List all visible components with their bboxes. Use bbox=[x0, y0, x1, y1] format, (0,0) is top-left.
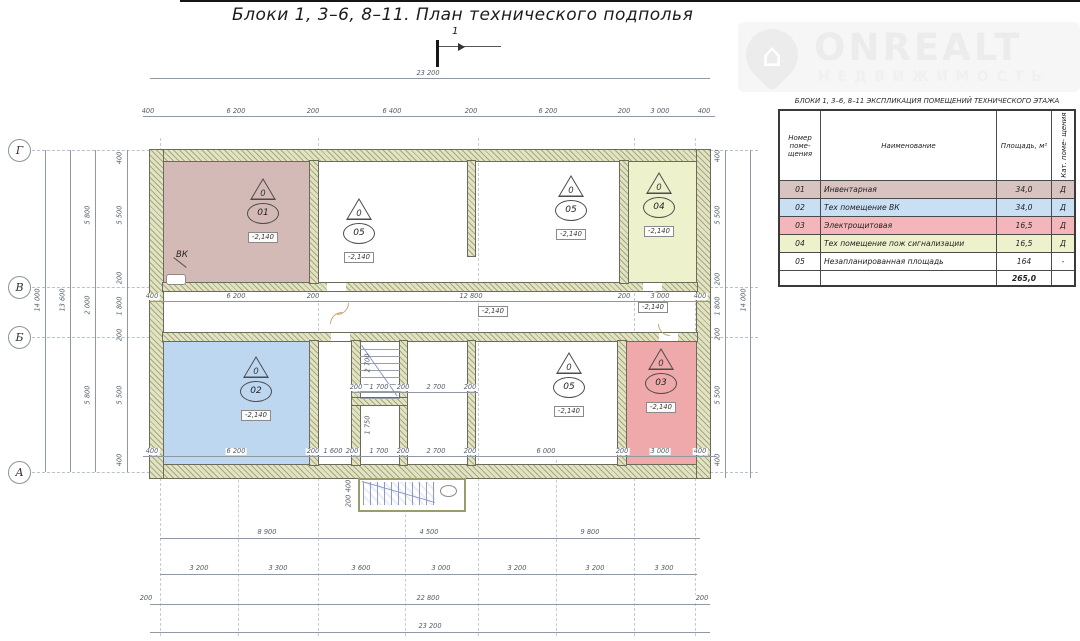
drawing-title: Блоки 1, 3–6, 8–11. План технического по… bbox=[232, 5, 693, 25]
elevation-label: -2,140 bbox=[241, 410, 271, 421]
dim-label: 2 700 bbox=[365, 353, 372, 374]
wall bbox=[310, 161, 318, 283]
dim-label: 14 000 bbox=[35, 287, 42, 312]
elevation-label: -2,140 bbox=[554, 406, 584, 417]
stair-fixture bbox=[440, 485, 457, 497]
legend-table-body: 01Инвентарная34,0Д02Тех помещение ВК34,0… bbox=[779, 181, 1075, 287]
dim-label: 400 bbox=[117, 151, 124, 166]
legend-cell-area: 34,0 bbox=[997, 199, 1052, 217]
legend-cell-area: 16,5 bbox=[997, 235, 1052, 253]
dim-label: 3 000 bbox=[650, 108, 671, 115]
dim-line bbox=[150, 301, 710, 302]
col-category: Кат. поме- щения bbox=[1052, 110, 1076, 181]
legend-header-row: Номер поме- щения Наименование Площадь, … bbox=[779, 110, 1075, 181]
axis-bubble: В bbox=[8, 276, 31, 299]
dim-label: 200 bbox=[349, 384, 364, 391]
section-mark-number: 1 bbox=[452, 26, 458, 37]
wall-stair-landing bbox=[352, 398, 407, 405]
dim-label: 400 bbox=[715, 453, 722, 468]
dim-label: 1 800 bbox=[117, 296, 124, 317]
axis-line bbox=[478, 138, 479, 636]
dim-label: 2 000 bbox=[85, 295, 92, 316]
dim-label: 200 bbox=[617, 108, 632, 115]
dim-label: 400 bbox=[117, 453, 124, 468]
dim-label: 5 500 bbox=[715, 385, 722, 406]
dim-label: 400 bbox=[697, 108, 712, 115]
legend-row: 03Электрощитовая16,5Д bbox=[779, 217, 1075, 235]
legend-cell-area: 164 bbox=[997, 253, 1052, 271]
room-marker-01: 001-2,140 bbox=[240, 178, 286, 243]
dim-label: 200 bbox=[396, 384, 411, 391]
col-area: Площадь, м² bbox=[997, 110, 1052, 181]
zone-triangle-icon: 0 bbox=[646, 172, 672, 194]
dim-line bbox=[160, 538, 700, 539]
dim-line bbox=[150, 604, 710, 605]
dim-label: 6 200 bbox=[226, 448, 247, 455]
room-marker-03: 003-2,140 bbox=[638, 348, 684, 413]
dim-line bbox=[750, 150, 751, 478]
wall bbox=[163, 283, 697, 291]
dim-label: 9 800 bbox=[580, 529, 601, 536]
legend-row: 05Незапланированная площадь164- bbox=[779, 253, 1075, 271]
legend-cell-area: 16,5 bbox=[997, 217, 1052, 235]
elevation-label: -2,140 bbox=[478, 306, 508, 317]
dim-label: 3 300 bbox=[654, 565, 675, 572]
wall bbox=[163, 333, 697, 341]
dim-label: 400 bbox=[346, 479, 353, 494]
house-icon: ⌂ bbox=[746, 29, 798, 81]
axis-line bbox=[556, 460, 557, 636]
dim-label: 5 800 bbox=[85, 385, 92, 406]
dim-label: 200 bbox=[306, 108, 321, 115]
legend-cell-num: 05 bbox=[779, 253, 821, 271]
dim-label: 200 bbox=[463, 384, 478, 391]
zone-triangle-icon: 0 bbox=[648, 348, 674, 370]
room-number-oval: 02 bbox=[240, 381, 272, 402]
dim-label: 2 700 bbox=[426, 384, 447, 391]
dim-label: 200 bbox=[695, 595, 710, 602]
dim-label: 200 bbox=[617, 293, 632, 300]
dim-label: 200 bbox=[463, 448, 478, 455]
dim-label: 3 000 bbox=[650, 448, 671, 455]
elevation-label: -2,140 bbox=[646, 402, 676, 413]
dim-label: 5 500 bbox=[117, 385, 124, 406]
legend-cell-name: Инвентарная bbox=[821, 181, 997, 199]
axis-line bbox=[318, 138, 319, 636]
zone-triangle-icon: 0 bbox=[243, 356, 269, 378]
zone-triangle-icon: 0 bbox=[556, 352, 582, 374]
room-marker-05: 005-2,140 bbox=[548, 175, 594, 240]
vk-fixture bbox=[166, 274, 186, 285]
dim-line bbox=[95, 150, 96, 472]
legend-cell-num: 04 bbox=[779, 235, 821, 253]
legend-empty-cell bbox=[821, 271, 997, 287]
axis-bubble: Б bbox=[8, 326, 31, 349]
legend-cell-name: Тех помещение ВК bbox=[821, 199, 997, 217]
section-mark-bar bbox=[436, 40, 439, 67]
dim-label: 13 600 bbox=[60, 287, 67, 312]
dim-label: 400 bbox=[693, 293, 708, 300]
dim-label: 400 bbox=[693, 448, 708, 455]
legend-cell-num: 02 bbox=[779, 199, 821, 217]
dim-label: 3 600 bbox=[351, 565, 372, 572]
dim-label: 200 bbox=[117, 271, 124, 286]
dim-label: 1 750 bbox=[365, 415, 372, 436]
dim-label: 400 bbox=[715, 149, 722, 164]
dim-line bbox=[725, 150, 726, 478]
elevation-label: -2,140 bbox=[556, 229, 586, 240]
dim-label: 200 bbox=[306, 448, 321, 455]
room-number-oval: 01 bbox=[247, 203, 279, 224]
col-room-number: Номер поме- щения bbox=[779, 110, 821, 181]
wall bbox=[150, 150, 710, 161]
dim-label: 3 000 bbox=[650, 293, 671, 300]
dim-label: 200 bbox=[715, 327, 722, 342]
dim-label: 5 500 bbox=[715, 205, 722, 226]
col-room-name: Наименование bbox=[821, 110, 997, 181]
blueprint-page: Блоки 1, 3–6, 8–11. План технического по… bbox=[0, 0, 1080, 641]
room-number-oval: 05 bbox=[555, 200, 587, 221]
legend-cell-cat: Д bbox=[1052, 235, 1076, 253]
legend-cell-num: 03 bbox=[779, 217, 821, 235]
dim-line bbox=[150, 78, 710, 79]
legend-cell-name: Незапланированная площадь bbox=[821, 253, 997, 271]
legend-row: 01Инвентарная34,0Д bbox=[779, 181, 1075, 199]
room-marker-04: 004-2,140 bbox=[636, 172, 682, 237]
room-explication-table: Номер поме- щения Наименование Площадь, … bbox=[778, 109, 1076, 287]
axis-bubble: А bbox=[8, 461, 31, 484]
dim-label: 6 000 bbox=[536, 448, 557, 455]
dim-line bbox=[127, 150, 128, 472]
axis-line bbox=[238, 460, 239, 636]
elevation-label: -2,140 bbox=[344, 252, 374, 263]
legend-empty-cell bbox=[1052, 271, 1076, 287]
dim-label: 6 200 bbox=[226, 293, 247, 300]
dim-label: 200 bbox=[615, 448, 630, 455]
dim-label: 200 bbox=[396, 448, 411, 455]
dim-label: 1 600 bbox=[323, 448, 344, 455]
legend-row: 04Тех помещение пож сигнализации16,5Д bbox=[779, 235, 1075, 253]
dim-label: 200 bbox=[346, 494, 353, 509]
legend-cell-cat: Д bbox=[1052, 199, 1076, 217]
legend-row: 02Тех помещение ВК34,0Д bbox=[779, 199, 1075, 217]
legend-title: БЛОКИ 1, 3–6, 8–11 ЭКСПЛИКАЦИЯ ПОМЕЩЕНИЙ… bbox=[776, 97, 1078, 105]
dim-label: 8 900 bbox=[257, 529, 278, 536]
dim-label: 200 bbox=[306, 293, 321, 300]
legend-total-row: 265,0 bbox=[779, 271, 1075, 287]
dim-line bbox=[352, 392, 478, 393]
elevation-label: -2,140 bbox=[248, 232, 278, 243]
dim-label: 14 000 bbox=[741, 287, 748, 312]
dim-label: 6 400 bbox=[382, 108, 403, 115]
zone-triangle-icon: 0 bbox=[558, 175, 584, 197]
dim-label: 22 800 bbox=[415, 595, 440, 602]
dim-label: 6 200 bbox=[538, 108, 559, 115]
dim-label: 1 800 bbox=[715, 296, 722, 317]
dim-label: 400 bbox=[141, 108, 156, 115]
room-marker-05: 005-2,140 bbox=[546, 352, 592, 417]
zone-triangle-icon: 0 bbox=[250, 178, 276, 200]
legend-cell-cat: Д bbox=[1052, 181, 1076, 199]
section-mark-arrow-icon bbox=[458, 43, 469, 51]
dim-label: 3 200 bbox=[189, 565, 210, 572]
legend-cell-area: 34,0 bbox=[997, 181, 1052, 199]
dim-label: 2 700 bbox=[426, 448, 447, 455]
dim-label: 1 700 bbox=[369, 448, 390, 455]
legend-cell-cat: Д bbox=[1052, 217, 1076, 235]
legend-cell-num: 01 bbox=[779, 181, 821, 199]
dim-label: 3 200 bbox=[585, 565, 606, 572]
wall bbox=[150, 150, 163, 478]
map-pin-house-icon: ⌂ bbox=[735, 18, 809, 92]
axis-bubble: Г bbox=[8, 139, 31, 162]
room-number-oval: 05 bbox=[343, 223, 375, 244]
onrealt-watermark: ⌂ ONREALT НЕДВИЖИМОСТЬ bbox=[738, 22, 1080, 92]
zone-triangle-icon: 0 bbox=[346, 198, 372, 220]
legend-total-area: 265,0 bbox=[997, 271, 1052, 287]
dim-label: 200 bbox=[117, 328, 124, 343]
dim-label: 5 800 bbox=[85, 205, 92, 226]
room-number-oval: 03 bbox=[645, 373, 677, 394]
logo-brand-text: ONREALT bbox=[814, 26, 1023, 69]
legend-cell-cat: - bbox=[1052, 253, 1076, 271]
legend-empty-cell bbox=[779, 271, 821, 287]
dim-line bbox=[160, 574, 697, 575]
dim-label: 3 300 bbox=[268, 565, 289, 572]
dim-label: 4 500 bbox=[419, 529, 440, 536]
section-mark-line bbox=[439, 46, 501, 47]
dim-label: 23 200 bbox=[415, 70, 440, 77]
wall bbox=[150, 465, 710, 478]
dim-line bbox=[143, 116, 715, 117]
logo-subtitle-text: НЕДВИЖИМОСТЬ bbox=[818, 69, 1049, 85]
dim-label: 200 bbox=[715, 272, 722, 287]
wall bbox=[468, 161, 475, 256]
dim-label: 6 200 bbox=[226, 108, 247, 115]
dim-line bbox=[150, 632, 710, 633]
dim-label: 200 bbox=[139, 595, 154, 602]
dim-label: 3 200 bbox=[507, 565, 528, 572]
dim-line bbox=[45, 150, 46, 472]
dim-label: 3 000 bbox=[431, 565, 452, 572]
dim-line bbox=[70, 150, 71, 472]
legend-cell-name: Электрощитовая bbox=[821, 217, 997, 235]
dim-label: 12 800 bbox=[458, 293, 483, 300]
dim-label: 400 bbox=[145, 448, 160, 455]
dim-label: 400 bbox=[145, 293, 160, 300]
room-marker-02: 002-2,140 bbox=[233, 356, 279, 421]
elevation-label: -2,140 bbox=[638, 302, 668, 313]
dim-label: 200 bbox=[345, 448, 360, 455]
elevation-label: -2,140 bbox=[644, 226, 674, 237]
dim-label: 5 500 bbox=[117, 205, 124, 226]
room-01-inventory bbox=[163, 161, 310, 283]
room-marker-05: 005-2,140 bbox=[336, 198, 382, 263]
room-number-oval: 05 bbox=[553, 377, 585, 398]
room-number-oval: 04 bbox=[643, 197, 675, 218]
wall bbox=[697, 150, 710, 478]
photo-edge bbox=[180, 0, 1080, 2]
dim-line bbox=[143, 456, 715, 457]
wall bbox=[620, 161, 628, 283]
dim-label: 200 bbox=[464, 108, 479, 115]
dim-label: 23 200 bbox=[417, 623, 442, 630]
dim-label: 1 700 bbox=[369, 384, 390, 391]
vk-label: ВК bbox=[176, 250, 188, 260]
legend-cell-name: Тех помещение пож сигнализации bbox=[821, 235, 997, 253]
